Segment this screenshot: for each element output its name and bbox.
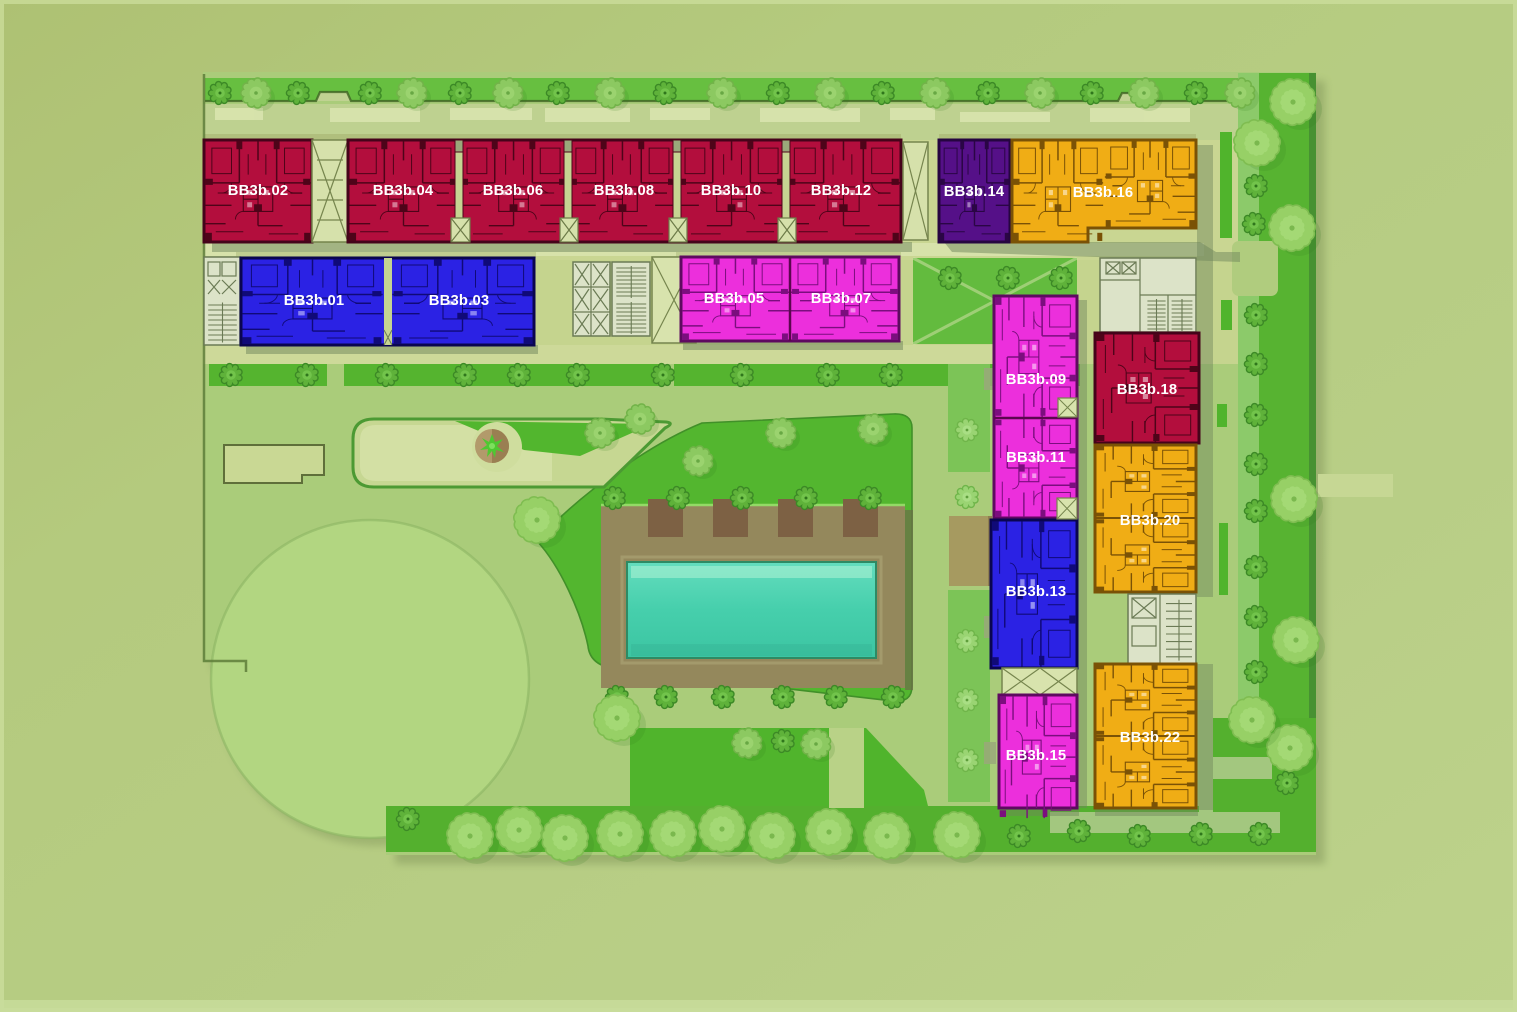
svg-text:BB3b.06: BB3b.06 [483,183,544,199]
svg-text:BB3b.07: BB3b.07 [811,291,872,307]
svg-text:BB3b.14: BB3b.14 [944,184,1005,200]
svg-text:BB3b.02: BB3b.02 [228,183,289,199]
svg-text:BB3b.18: BB3b.18 [1117,382,1178,398]
svg-text:BB3b.20: BB3b.20 [1120,513,1181,529]
svg-text:BB3b.15: BB3b.15 [1006,748,1067,764]
svg-text:BB3b.05: BB3b.05 [704,291,765,307]
svg-text:BB3b.16: BB3b.16 [1073,185,1134,201]
svg-text:BB3b.01: BB3b.01 [284,293,345,309]
svg-text:BB3b.22: BB3b.22 [1120,730,1181,746]
svg-text:BB3b.11: BB3b.11 [1006,450,1066,466]
svg-text:BB3b.10: BB3b.10 [701,183,762,199]
svg-text:BB3b.03: BB3b.03 [429,293,490,309]
svg-text:BB3b.09: BB3b.09 [1006,372,1067,388]
svg-text:BB3b.13: BB3b.13 [1006,584,1067,600]
svg-text:BB3b.12: BB3b.12 [811,183,872,199]
svg-text:BB3b.08: BB3b.08 [594,183,655,199]
svg-text:BB3b.04: BB3b.04 [373,183,434,199]
